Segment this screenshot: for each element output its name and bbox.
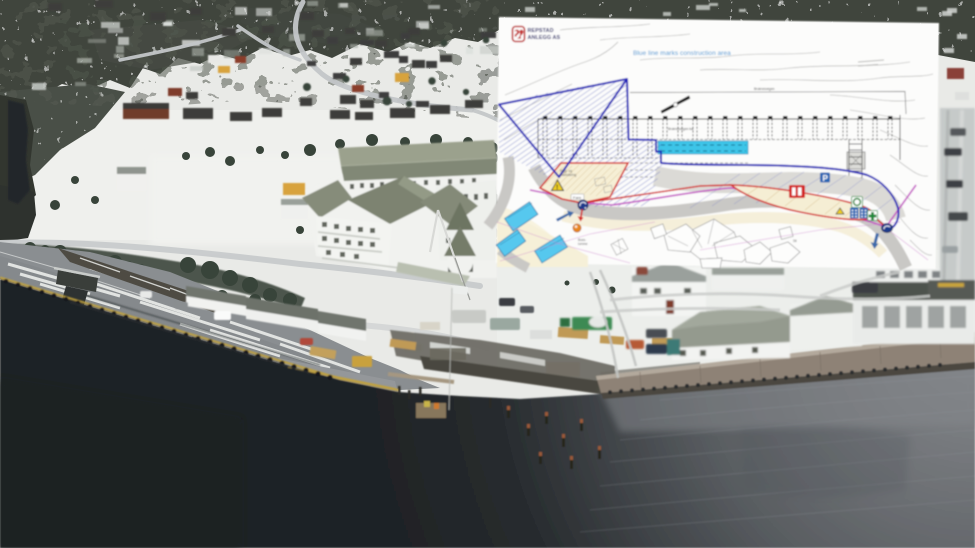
- svg-text:Blue line marks construction a: Blue line marks construction area: [633, 50, 731, 57]
- svg-text:marksikring: marksikring: [560, 173, 577, 177]
- svg-text:Fare: Fare: [573, 195, 582, 200]
- svg-text:REPSTAD: REPSTAD: [528, 28, 554, 34]
- svg-text:Sti: Sti: [793, 239, 797, 243]
- svg-text:ANLEGG AS: ANLEGG AS: [528, 35, 561, 41]
- svg-text:P: P: [823, 174, 829, 183]
- svg-text:!: !: [556, 185, 558, 192]
- svg-text:Bruknesvegen: Bruknesvegen: [754, 87, 775, 91]
- svg-text:Bruknesvegen kai: Bruknesvegen kai: [668, 127, 694, 131]
- svg-text:lomme: lomme: [578, 242, 588, 246]
